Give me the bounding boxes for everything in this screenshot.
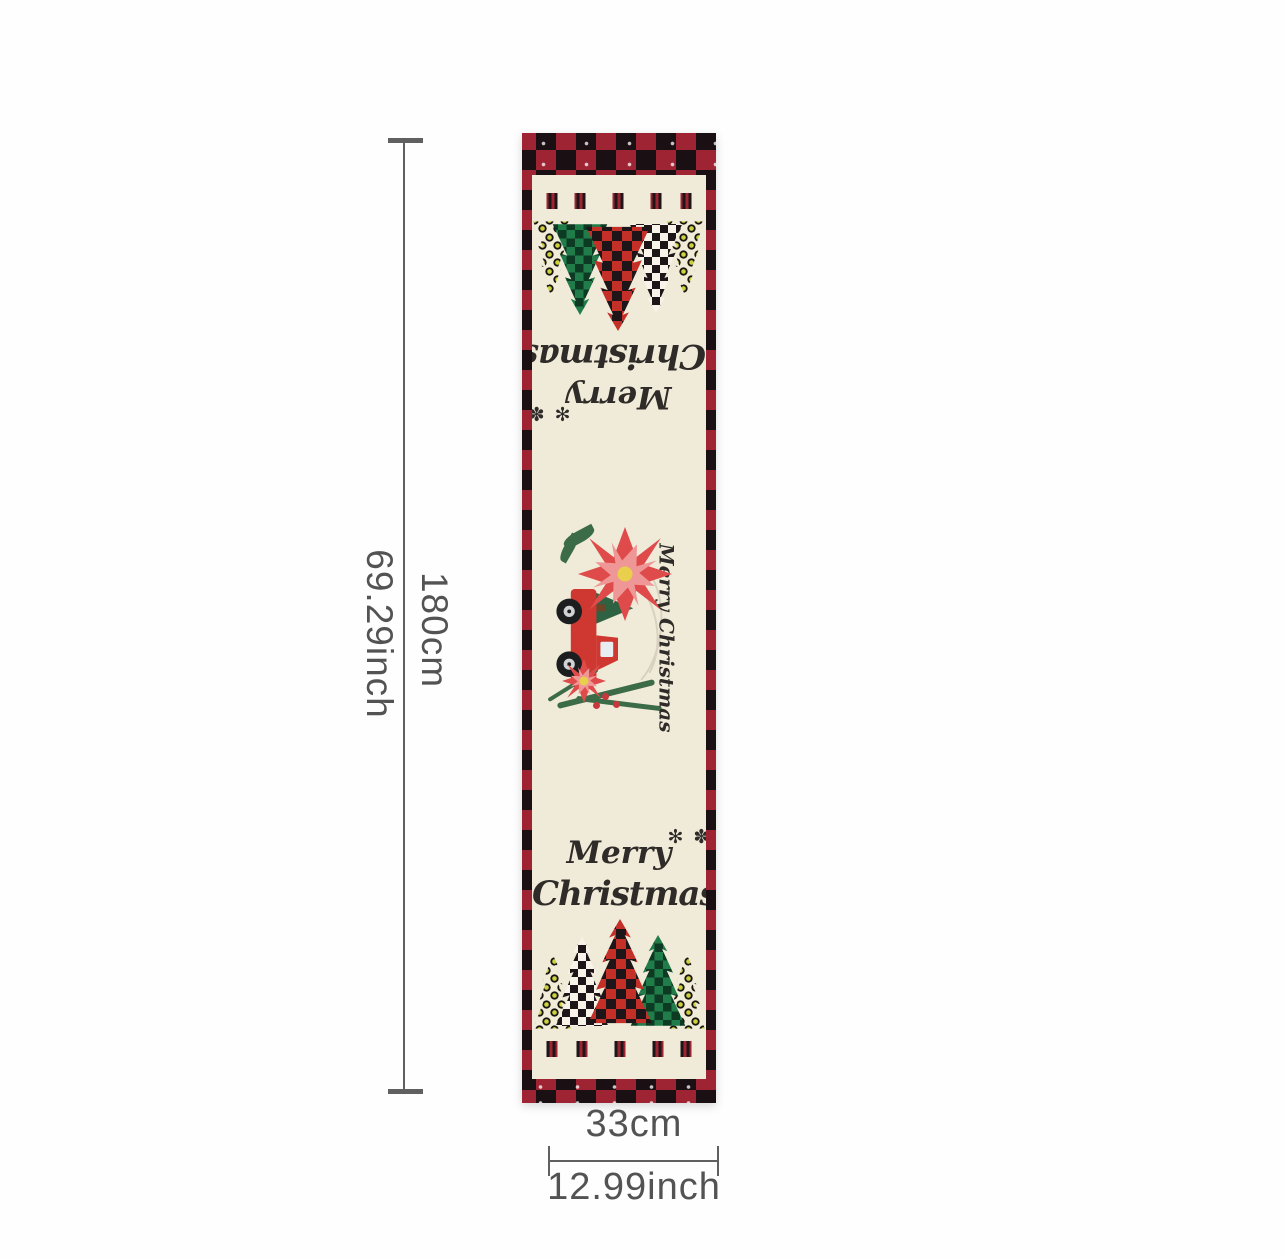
height-label-inch-text: 69.29inch — [358, 549, 400, 718]
tree-trunk — [615, 1041, 626, 1057]
runner-bottom-design: Merry ✻ ✽ Christmas — [532, 809, 706, 1061]
merry-text: Merry — [567, 835, 672, 871]
table-runner: Merry ✻ ✽ Christmas — [522, 133, 716, 1103]
plaid-trees-row — [532, 919, 706, 1057]
merry-christmas-script: Merry ✻ ✽ Christmas — [532, 335, 706, 417]
product-dimension-image: 180cm 69.29inch Merry ✻ ✽ Christmas — [0, 0, 1284, 1259]
poinsettia-center — [618, 567, 633, 582]
tree-foliage — [584, 207, 652, 331]
poinsettia-flower-small — [562, 659, 606, 703]
script-word-christmas: Christmas — [532, 873, 706, 915]
tree-foliage — [586, 919, 654, 1043]
snowflake-icon: ✻ ✽ — [667, 817, 706, 857]
red-plaid-tree — [584, 193, 652, 331]
plaid-trees-row — [532, 193, 706, 331]
runner-center-panel: Merry ✻ ✽ Christmas — [532, 175, 706, 1079]
height-dimension-line — [403, 141, 405, 1092]
width-label-cm: 33cm — [586, 1103, 683, 1146]
width-label-inch: 12.99inch — [547, 1166, 721, 1209]
height-label-cm-text: 180cm — [413, 572, 455, 688]
runner-top-design: Merry ✻ ✽ Christmas — [532, 189, 706, 441]
snowflake-icon: ✻ ✽ — [532, 393, 571, 433]
runner-middle-vignette: Merry Christmas — [532, 543, 706, 733]
height-dimension-top-cap — [388, 138, 423, 143]
height-dimension-bottom-cap — [388, 1089, 423, 1094]
snow-dots-top-band — [522, 133, 716, 175]
snow-dots-bottom-band — [522, 1079, 716, 1103]
red-plaid-tree — [586, 919, 654, 1057]
holly-berry — [602, 693, 609, 700]
merry-christmas-script: Merry ✻ ✽ Christmas — [532, 833, 706, 915]
width-dimension-line — [549, 1160, 719, 1162]
tree-trunk — [653, 1041, 664, 1057]
tree-trunk — [651, 193, 662, 209]
holly-berry — [593, 702, 600, 709]
poinsettia-center — [580, 677, 589, 686]
script-word-christmas: Christmas — [532, 335, 706, 377]
holly-berry — [613, 701, 620, 708]
merry-text: Merry — [567, 379, 672, 415]
poinsettia-flower — [578, 527, 672, 621]
tree-trunk — [613, 193, 624, 209]
script-word-merry: Merry ✻ ✽ — [567, 833, 672, 873]
script-word-merry: Merry ✻ ✽ — [567, 377, 672, 417]
